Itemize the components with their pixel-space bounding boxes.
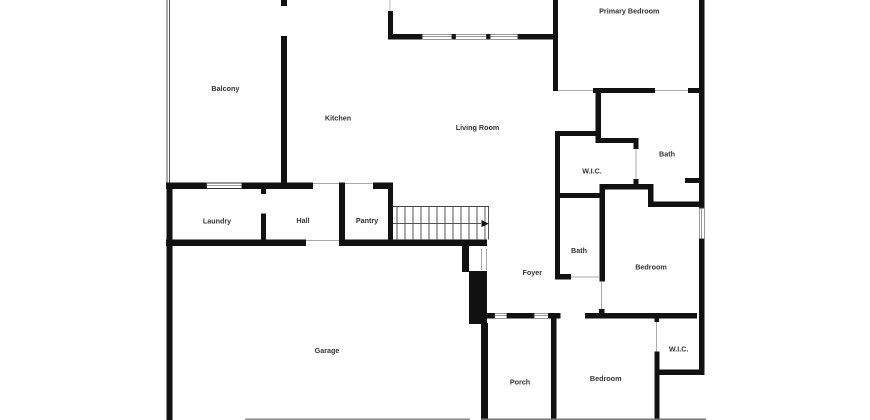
svg-text:Kitchen: Kitchen [325,114,351,123]
svg-text:Pantry: Pantry [356,216,378,225]
svg-text:Living Room: Living Room [456,123,500,132]
svg-text:Bedroom: Bedroom [590,374,622,383]
svg-text:Garage: Garage [315,346,340,355]
svg-text:Bath: Bath [571,246,587,255]
svg-text:Porch: Porch [510,377,530,386]
svg-text:Primary Bedroom: Primary Bedroom [599,7,659,16]
svg-text:Laundry: Laundry [203,216,231,225]
svg-text:Hall: Hall [296,216,309,225]
svg-text:W.I.C.: W.I.C. [669,345,689,354]
svg-text:Bath: Bath [659,150,675,159]
svg-text:Foyer: Foyer [523,268,543,277]
svg-text:W.I.C.: W.I.C. [582,167,602,176]
svg-text:Bedroom: Bedroom [635,263,667,272]
svg-text:Balcony: Balcony [211,84,239,93]
